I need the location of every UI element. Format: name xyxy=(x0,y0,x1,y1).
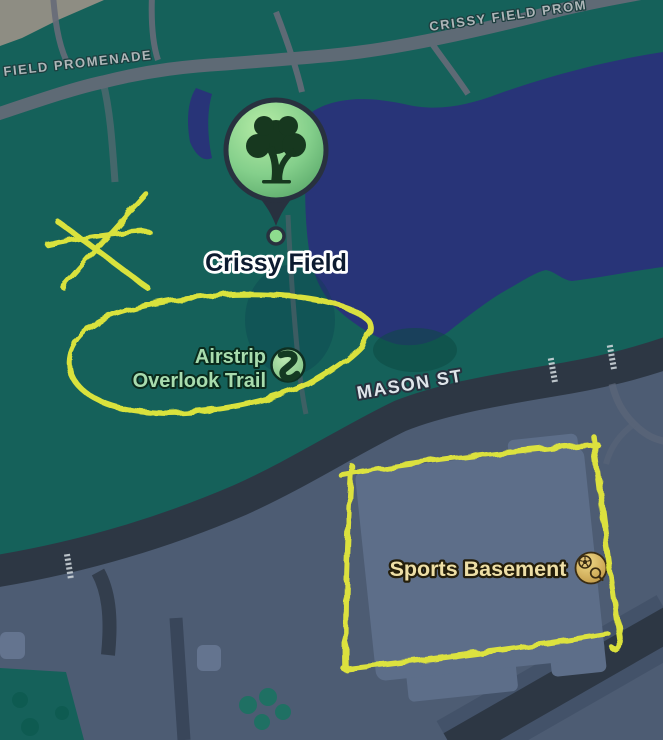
map-viewport[interactable]: FIELD PROMENADE CRISSY FIELD PROM MASON … xyxy=(0,0,663,740)
poi-label[interactable]: Sports Basement xyxy=(390,557,567,581)
map-canvas[interactable]: FIELD PROMENADE CRISSY FIELD PROM MASON … xyxy=(0,0,663,740)
small-building xyxy=(197,645,221,671)
hill-shading xyxy=(373,328,457,372)
parking-aisle xyxy=(176,618,184,740)
pin-anchor-dot xyxy=(268,228,284,244)
small-building xyxy=(0,632,25,659)
poi-label[interactable]: Airstrip xyxy=(195,346,266,368)
poi-label[interactable]: Overlook Trail xyxy=(133,370,266,392)
sports-icon xyxy=(576,553,607,584)
pin-label[interactable]: Crissy Field xyxy=(205,249,347,277)
trail-icon xyxy=(272,349,305,382)
